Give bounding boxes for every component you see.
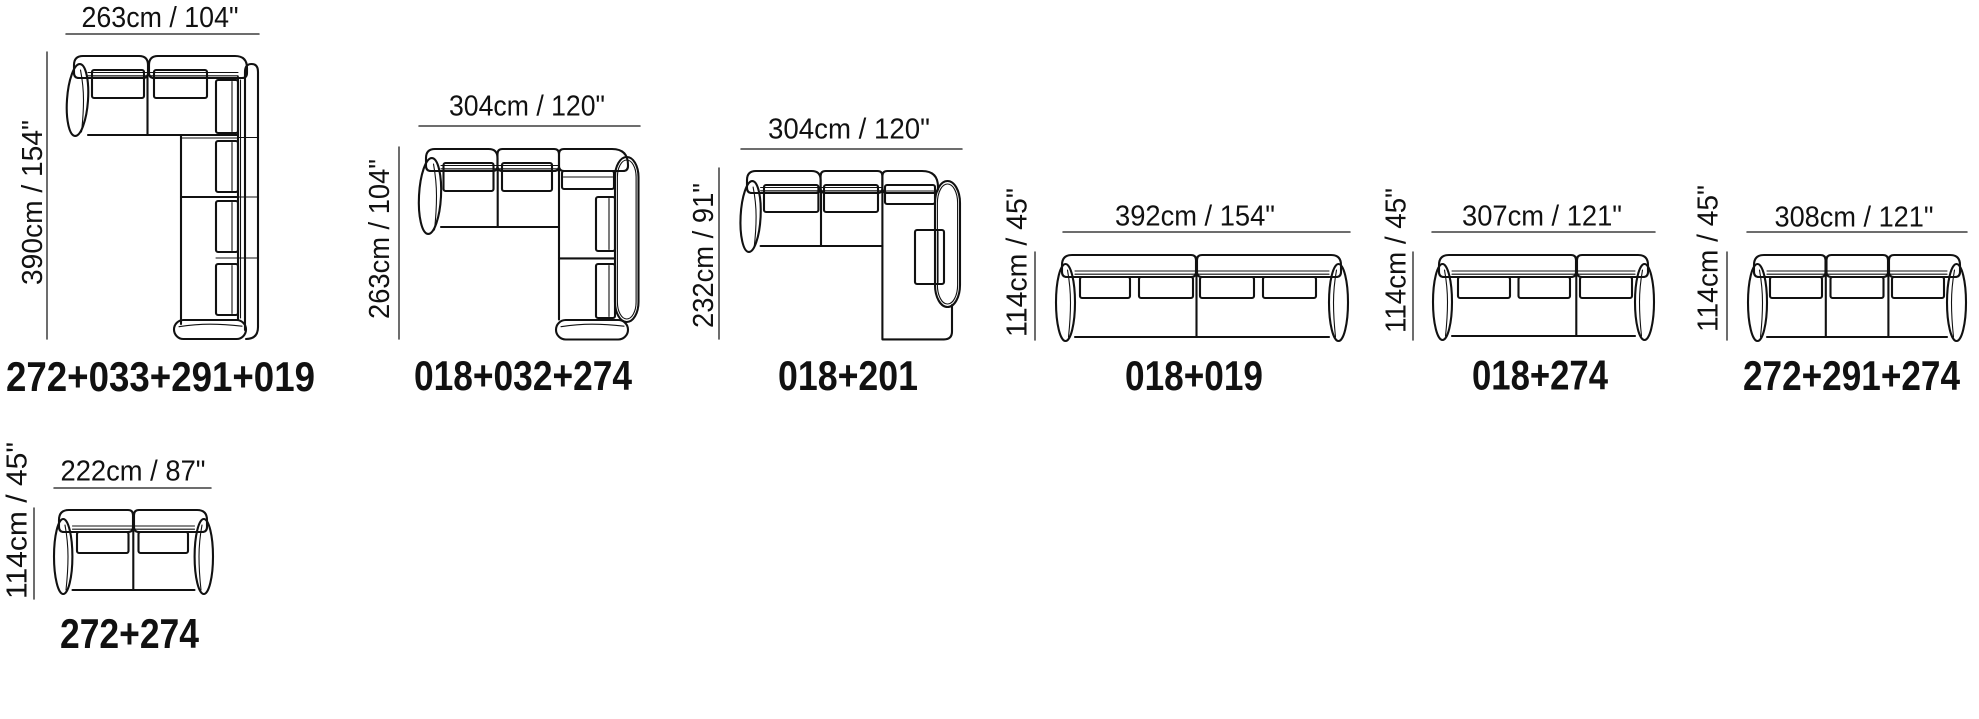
- svg-text:263cm / 104": 263cm / 104": [364, 159, 396, 319]
- svg-text:114cm / 45": 114cm / 45": [1001, 188, 1033, 337]
- svg-text:304cm / 120": 304cm / 120": [768, 114, 930, 146]
- svg-text:018+274: 018+274: [1472, 352, 1609, 399]
- svg-text:272+033+291+019: 272+033+291+019: [6, 353, 315, 400]
- svg-text:222cm / 87": 222cm / 87": [61, 456, 206, 488]
- svg-text:114cm / 45": 114cm / 45": [1, 442, 33, 599]
- svg-text:018+032+274: 018+032+274: [414, 352, 633, 399]
- svg-text:392cm / 154": 392cm / 154": [1115, 201, 1275, 233]
- svg-text:263cm / 104": 263cm / 104": [82, 2, 239, 34]
- svg-text:390cm / 154": 390cm / 154": [17, 120, 49, 285]
- svg-text:114cm / 45": 114cm / 45": [1380, 188, 1412, 333]
- svg-text:308cm / 121": 308cm / 121": [1775, 202, 1934, 234]
- svg-text:114cm / 45": 114cm / 45": [1692, 185, 1724, 332]
- svg-text:018+201: 018+201: [778, 352, 918, 399]
- svg-text:307cm / 121": 307cm / 121": [1462, 201, 1622, 233]
- svg-text:272+274: 272+274: [60, 610, 200, 657]
- svg-text:018+019: 018+019: [1125, 352, 1263, 399]
- svg-text:304cm / 120": 304cm / 120": [449, 91, 605, 123]
- svg-text:272+291+274: 272+291+274: [1743, 352, 1961, 399]
- svg-text:232cm / 91": 232cm / 91": [688, 183, 720, 328]
